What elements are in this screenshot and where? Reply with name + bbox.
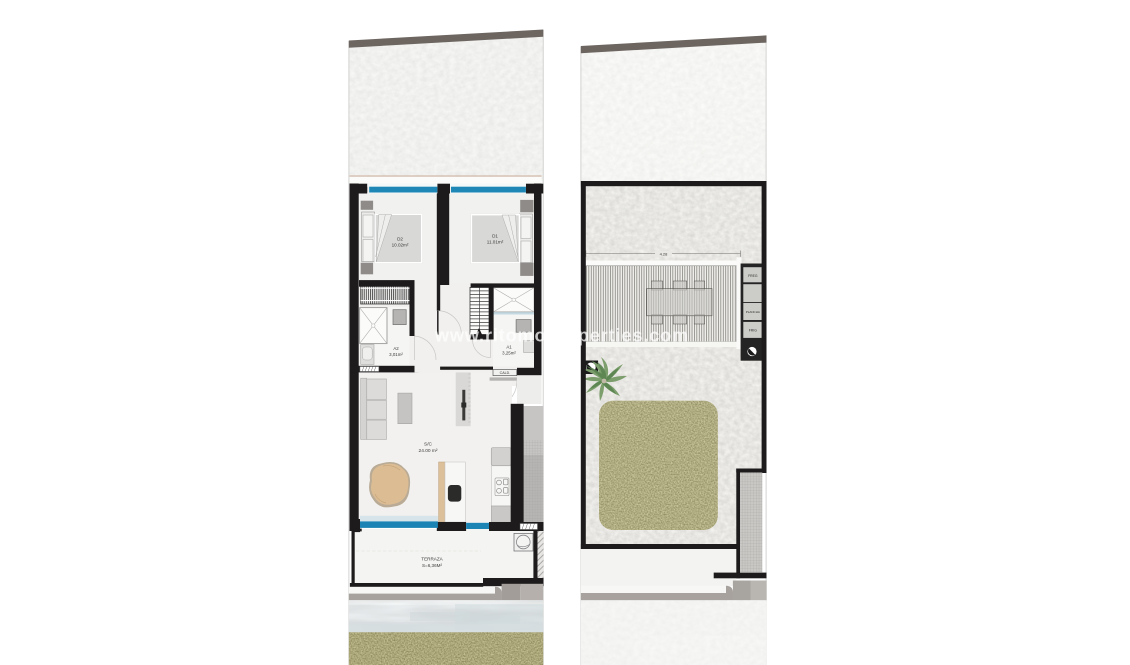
svg-text:CALD.: CALD. [500, 371, 511, 375]
svg-text:D2: D2 [397, 237, 403, 242]
svg-text:PLANCHA: PLANCHA [746, 310, 760, 314]
svg-text:10.02m²: 10.02m² [392, 243, 409, 248]
svg-text:4.28: 4.28 [660, 251, 669, 256]
svg-text:3,01m²: 3,01m² [389, 352, 403, 357]
svg-text:FRIG: FRIG [749, 328, 757, 332]
svg-text:3,25m²: 3,25m² [502, 351, 516, 356]
svg-text:S=6,36M²: S=6,36M² [422, 563, 443, 568]
svg-text:D1: D1 [492, 234, 498, 239]
svg-text:11.01m²: 11.01m² [487, 240, 504, 245]
svg-text:A2: A2 [393, 346, 399, 351]
svg-text:S/C: S/C [424, 442, 433, 448]
svg-text:FREG: FREG [748, 274, 758, 278]
svg-text:www.ritomoproperties.com: www.ritomoproperties.com [434, 326, 689, 346]
svg-text:24.00 m²: 24.00 m² [419, 448, 438, 454]
svg-text:TERRAZA: TERRAZA [421, 557, 443, 562]
